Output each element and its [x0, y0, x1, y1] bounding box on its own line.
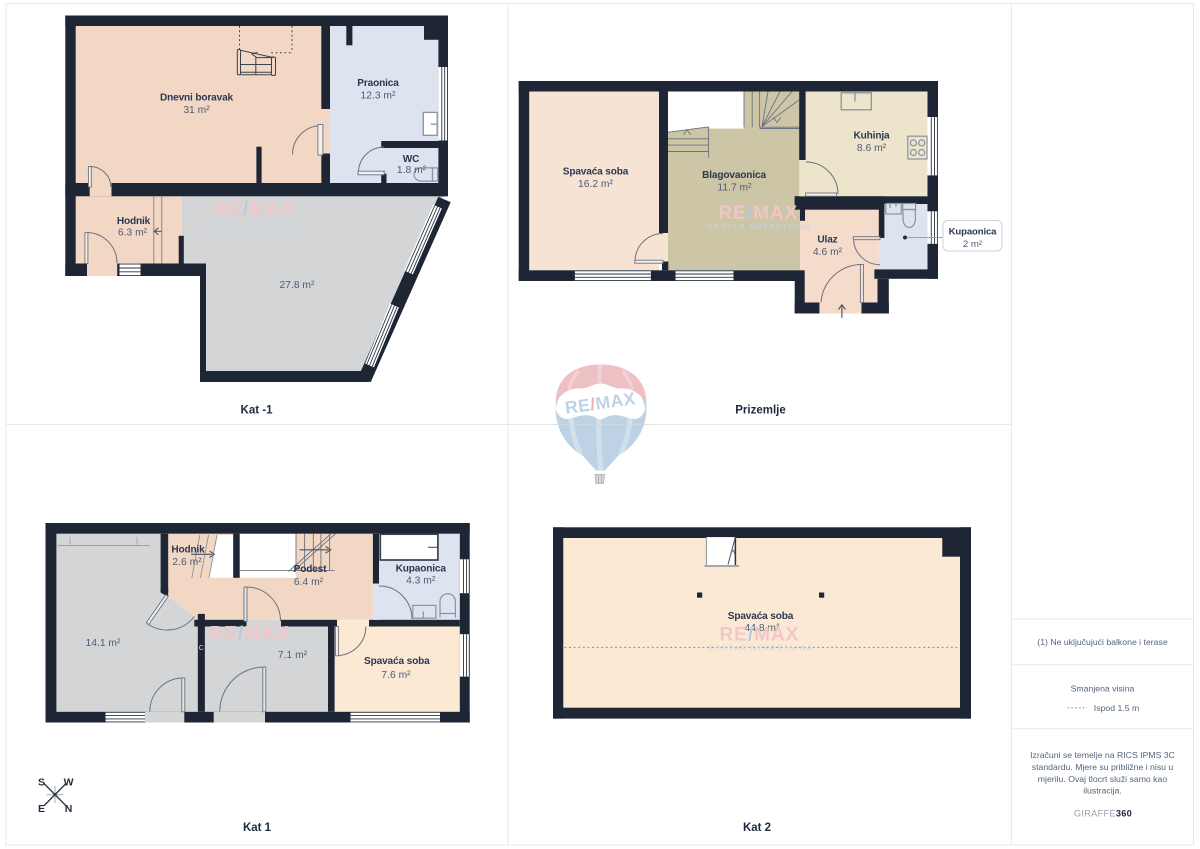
svg-text:Kat 1: Kat 1: [243, 822, 272, 834]
svg-text:1.8 m²: 1.8 m²: [397, 165, 427, 176]
svg-text:4.3 m²: 4.3 m²: [406, 576, 436, 587]
svg-text:Spavaća soba: Spavaća soba: [728, 611, 794, 622]
svg-text:Izračuni se temelje na RICS IP: Izračuni se temelje na RICS IPMS 3C: [1030, 750, 1175, 760]
svg-text:W: W: [64, 777, 74, 789]
svg-text:E: E: [38, 803, 45, 815]
svg-text:GIRAFFE360: GIRAFFE360: [1074, 809, 1132, 819]
svg-text:RE/MAX: RE/MAX: [209, 624, 289, 645]
svg-text:7.6 m²: 7.6 m²: [381, 670, 411, 681]
svg-text:Kat -1: Kat -1: [241, 405, 274, 417]
svg-text:Kupaonica: Kupaonica: [949, 227, 998, 238]
svg-text:CENTAR NEKRETNINA: CENTAR NEKRETNINA: [204, 220, 309, 229]
svg-text:Smanjena visina: Smanjena visina: [1071, 683, 1135, 693]
svg-text:12.3 m²: 12.3 m²: [361, 91, 396, 102]
svg-text:CENTAR NEKRETNINA: CENTAR NEKRETNINA: [708, 222, 813, 231]
svg-text:RE/MAX: RE/MAX: [719, 625, 799, 646]
svg-text:mjerilu. Ovaj tlocrt služi sam: mjerilu. Ovaj tlocrt služi samo kao: [1038, 774, 1168, 784]
svg-text:16.2 m²: 16.2 m²: [578, 179, 613, 190]
svg-text:Dnevni boravak: Dnevni boravak: [160, 93, 234, 104]
svg-text:S: S: [38, 777, 45, 789]
svg-text:4.6 m²: 4.6 m²: [813, 247, 843, 258]
svg-text:Kuhinja: Kuhinja: [854, 130, 890, 141]
svg-text:2.6 m²: 2.6 m²: [172, 557, 202, 568]
svg-text:ilustracija.: ilustracija.: [1083, 785, 1122, 795]
svg-text:WC: WC: [403, 154, 420, 165]
svg-text:Kat 2: Kat 2: [743, 822, 771, 834]
svg-text:Hodnik: Hodnik: [171, 545, 205, 556]
svg-text:14.1 m²: 14.1 m²: [86, 638, 121, 649]
svg-text:2 m²: 2 m²: [963, 239, 983, 250]
svg-text:N: N: [65, 803, 73, 815]
svg-text:6.4 m²: 6.4 m²: [294, 577, 324, 588]
svg-text:31 m²: 31 m²: [183, 105, 210, 116]
svg-text:27.8 m²: 27.8 m²: [280, 280, 315, 291]
svg-text:Ispod 1.5 m: Ispod 1.5 m: [1094, 703, 1139, 713]
svg-text:(1) Ne uključujući balkone i t: (1) Ne uključujući balkone i terase: [1037, 637, 1168, 647]
svg-text:RE/MAX: RE/MAX: [215, 199, 295, 220]
svg-text:11.7 m²: 11.7 m²: [717, 183, 752, 194]
svg-text:CENTAR NEKRETNINA: CENTAR NEKRETNINA: [709, 644, 814, 653]
svg-text:Spavaća soba: Spavaća soba: [563, 167, 629, 178]
svg-text:8.6 m²: 8.6 m²: [857, 143, 887, 154]
svg-text:Prizemlje: Prizemlje: [735, 405, 786, 417]
svg-text:Hodnik: Hodnik: [117, 216, 151, 227]
svg-text:Podest: Podest: [294, 564, 328, 575]
svg-text:Ulaz: Ulaz: [817, 235, 837, 246]
svg-text:Blagovaonica: Blagovaonica: [702, 170, 766, 181]
svg-text:RE/MAX: RE/MAX: [718, 203, 798, 224]
svg-text:Praonica: Praonica: [357, 78, 399, 89]
svg-text:Spavaća soba: Spavaća soba: [364, 656, 430, 667]
svg-text:6.3 m²: 6.3 m²: [118, 228, 148, 239]
svg-text:Kupaonica: Kupaonica: [396, 564, 447, 575]
svg-text:CENTAR NEKRETNINA: CENTAR NEKRETNINA: [199, 643, 304, 652]
svg-text:standardu. Mjere su približne: standardu. Mjere su približne i nisu u: [1032, 762, 1174, 772]
